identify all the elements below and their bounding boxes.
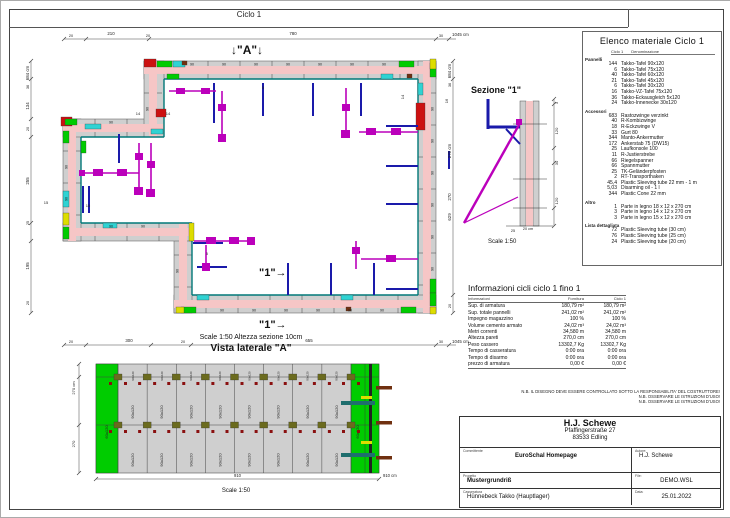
side-cell-label-small: 90x120 bbox=[189, 371, 193, 381]
side-view: 90x12090x12090x12090x12090x12090x12090x1… bbox=[71, 364, 397, 478]
section-prop bbox=[464, 123, 520, 223]
panel-width-label: 90 bbox=[65, 197, 69, 201]
corner-piece bbox=[63, 131, 69, 143]
dim-label-bottom: 30 bbox=[439, 340, 443, 344]
side-cell-label-small: 90x120 bbox=[276, 371, 280, 381]
prop-handle bbox=[202, 263, 210, 271]
side-cell-label: 90x120 bbox=[276, 453, 281, 467]
material-section: Altro1Parte in legno 18 x 12 x 270 cm3Pa… bbox=[583, 200, 721, 222]
panel-width-label: 90 bbox=[316, 309, 320, 313]
wall-concrete bbox=[144, 66, 436, 74]
corner-piece bbox=[81, 141, 86, 153]
corner-piece bbox=[407, 74, 412, 78]
dim-label-top: 210 bbox=[107, 31, 115, 36]
value-casseratura: Hünnebeck Takko (Hauptlager) bbox=[463, 494, 629, 500]
dim-label-right: 20 bbox=[448, 304, 452, 308]
side-cell-label: 90x120 bbox=[130, 453, 135, 467]
plan-inner-label: 15 bbox=[44, 200, 49, 205]
corner-piece bbox=[176, 307, 184, 313]
panel-width-label: 90 bbox=[380, 309, 384, 313]
panel-width-label: 90 bbox=[431, 235, 435, 239]
plan-inner-label: 5 bbox=[262, 86, 264, 90]
side-dim-bottom: 910 bbox=[234, 473, 242, 478]
corner-piece bbox=[189, 223, 194, 241]
cut-marker-1a: "1"→ bbox=[259, 267, 287, 279]
side-cell-label-small: 90x120 bbox=[218, 371, 222, 381]
clamp-dot bbox=[226, 430, 229, 433]
panel-width-label: 90 bbox=[146, 107, 150, 111]
corner-piece bbox=[182, 61, 187, 65]
wall-concrete bbox=[149, 61, 157, 137]
clamp-dot bbox=[299, 430, 302, 433]
clamp-dot bbox=[284, 430, 287, 433]
clamp-dot bbox=[211, 430, 214, 433]
prop-handle bbox=[201, 88, 210, 94]
plan-inner-label: 14 bbox=[136, 111, 141, 116]
cell-casseratura: Casseratura Hünnebeck Takko (Hauptlager) bbox=[460, 489, 632, 505]
section-prop-head bbox=[516, 119, 522, 125]
panel-width-label: 90 bbox=[318, 63, 322, 67]
side-cell-label: 90x120 bbox=[188, 405, 193, 419]
clamp-dot bbox=[153, 430, 156, 433]
prop-handle bbox=[352, 247, 360, 254]
panel-clamp bbox=[114, 422, 122, 428]
side-cell-label: 90x120 bbox=[159, 453, 164, 467]
panel-clamp bbox=[289, 374, 297, 380]
side-cell-label: 90x120 bbox=[217, 453, 222, 467]
dim-label-right: 684 cm bbox=[447, 63, 452, 78]
panel-width-label: 90 bbox=[431, 203, 435, 207]
material-col-qty: Ciclo 1 bbox=[611, 49, 623, 54]
info-col-fornitura: Fornitura bbox=[542, 296, 584, 302]
info-col-label: Informazioni bbox=[468, 296, 542, 302]
wall-concrete bbox=[179, 223, 187, 313]
prop-handle bbox=[206, 237, 216, 244]
prop-handle bbox=[117, 169, 127, 176]
panel-width-label: 90 bbox=[65, 165, 69, 169]
panel-width-label: 90 bbox=[431, 139, 435, 143]
material-name: Parte in legno 15 x 12 x 270 cm bbox=[621, 216, 691, 222]
clamp-dot bbox=[138, 382, 141, 385]
panel-width-label: 90 bbox=[382, 63, 386, 67]
panel-width-label: 90 bbox=[431, 267, 435, 271]
panel-width-label: 90 bbox=[109, 121, 113, 125]
corner-piece bbox=[197, 295, 209, 300]
corner-piece bbox=[144, 59, 156, 67]
prop-handle bbox=[79, 170, 85, 176]
dim-label-top: 1045 cm bbox=[452, 32, 469, 37]
section-view: 3120301202520 cm bbox=[464, 99, 559, 233]
plan-inner-label: 5 bbox=[206, 252, 208, 256]
material-col-name: Denominazione bbox=[631, 49, 659, 54]
plan-inner-label: 15 bbox=[86, 203, 91, 208]
panel-width-label: 90 bbox=[141, 225, 145, 229]
dim-label-left: 684 cm bbox=[25, 65, 30, 80]
panel-clamp bbox=[114, 374, 122, 380]
side-cell-label-small: 90x120 bbox=[247, 371, 251, 381]
end-wedge bbox=[361, 396, 372, 399]
value-committente: EuroSchal Homepage bbox=[463, 453, 629, 459]
prop-handle bbox=[218, 134, 226, 142]
company-name: H.J. Schewe bbox=[460, 417, 720, 428]
panel-clamp bbox=[172, 374, 180, 380]
clamp-dot bbox=[357, 430, 360, 433]
section-scale: Scale 1:50 bbox=[488, 239, 516, 245]
clamp-dot bbox=[124, 382, 127, 385]
cell-autore: Autore: H.J. Schewe bbox=[632, 448, 720, 472]
wall-concrete bbox=[63, 124, 164, 132]
disclaimer-line: N.B. OSSERVARE LE ISTRUZIONI D'USO! bbox=[391, 399, 720, 404]
clamp-dot bbox=[357, 382, 360, 385]
material-section: Pannelli144Takko-Tafel 90x1206Takko-Tafe… bbox=[583, 57, 721, 107]
end-brace bbox=[341, 453, 375, 457]
corner-piece bbox=[399, 61, 414, 67]
clamp-dot bbox=[270, 382, 273, 385]
side-cell-label: 90x120 bbox=[305, 453, 310, 467]
panel-width-label: 90 bbox=[190, 63, 194, 67]
panel-clamp bbox=[231, 374, 239, 380]
panel-width-label: 90 bbox=[350, 63, 354, 67]
panel-width-label: 90 bbox=[222, 63, 226, 67]
panel-clamp bbox=[143, 422, 151, 428]
prop-handle bbox=[386, 255, 396, 262]
panel-clamp bbox=[318, 374, 326, 380]
cycle-info-rows: Sup. di armatura180,79 m²180,79 m²Sup. t… bbox=[468, 303, 626, 367]
plan-inner-label: 14 bbox=[166, 111, 171, 116]
dim-label-left: 195 bbox=[25, 262, 30, 270]
panel-clamp bbox=[260, 422, 268, 428]
dim-label-left: 25 bbox=[26, 221, 30, 225]
wall-concrete bbox=[423, 61, 431, 313]
section-thickness-label: 25 bbox=[511, 229, 515, 233]
corner-piece bbox=[157, 61, 172, 67]
material-section: Accessori683Rastozwinge verzinkt40R-Komb… bbox=[583, 109, 721, 198]
side-cell-label-small: 90x120 bbox=[306, 371, 310, 381]
clamp-dot bbox=[342, 382, 345, 385]
drawing-sheet: Ciclo 1 2021020780301045 cm2030020655301… bbox=[0, 0, 730, 518]
prop-handle bbox=[147, 161, 155, 168]
corner-piece bbox=[63, 227, 69, 239]
clamp-dot bbox=[196, 430, 199, 433]
clamp-dot bbox=[299, 382, 302, 385]
material-row: 344Plastic Cone 22 mm bbox=[583, 192, 721, 198]
cell-file: File: DEMO.WSL bbox=[632, 473, 720, 488]
clamp-dot bbox=[313, 382, 316, 385]
prop-handle bbox=[135, 153, 143, 160]
clamp-dot bbox=[255, 382, 258, 385]
material-name: Takko-Innenecke 30x120 bbox=[621, 101, 677, 107]
clamp-dot bbox=[226, 382, 229, 385]
clamp-dot bbox=[124, 430, 127, 433]
clamp-dot bbox=[211, 382, 214, 385]
wall-concrete bbox=[174, 300, 436, 308]
panel-clamp bbox=[172, 422, 180, 428]
material-qty: 24 bbox=[583, 101, 617, 107]
side-cell-label: 90x120 bbox=[334, 405, 339, 419]
side-cell-label: 90x120 bbox=[130, 405, 135, 419]
panel-width-label: 90 bbox=[109, 225, 113, 229]
material-list-header: Ciclo 1 Denominazione bbox=[611, 49, 715, 55]
panel-clamp bbox=[318, 422, 326, 428]
material-qty: 24 bbox=[583, 240, 617, 246]
material-list-body: Pannelli144Takko-Tafel 90x1206Takko-Tafe… bbox=[583, 57, 721, 245]
side-cell-label: 90x120 bbox=[276, 405, 281, 419]
clamp-dot bbox=[241, 430, 244, 433]
dim-label-left: 36 bbox=[26, 85, 30, 89]
dim-label-right: 270 cm bbox=[447, 143, 452, 158]
end-anchor bbox=[376, 386, 392, 390]
info-col-ciclo: Ciclo 1 bbox=[584, 296, 626, 302]
prop-handle bbox=[341, 130, 350, 138]
corner-piece bbox=[167, 74, 179, 79]
corner-piece bbox=[430, 293, 436, 306]
prop-handle bbox=[93, 169, 103, 176]
clamp-dot bbox=[328, 382, 331, 385]
prop-handle bbox=[146, 189, 155, 197]
clamp-dot bbox=[167, 382, 170, 385]
corner-piece bbox=[65, 119, 77, 125]
panel-clamp bbox=[347, 422, 355, 428]
cycle-info-row: prezzo di armatura0,00 €0,00 € bbox=[468, 361, 626, 367]
clamp-dot bbox=[342, 430, 345, 433]
dim-label-bottom: 20 bbox=[69, 340, 73, 344]
section-dim-label: 120 bbox=[554, 127, 559, 134]
cycle-info-title: Informazioni cicli ciclo 1 fino 1 bbox=[468, 283, 626, 293]
info-row-label: prezzo di armatura bbox=[468, 361, 542, 367]
wall-concrete bbox=[63, 228, 192, 236]
cell-progetto: Progetto Mustergrundriß bbox=[460, 473, 632, 488]
clamp-dot bbox=[313, 430, 316, 433]
end-anchor bbox=[376, 421, 392, 425]
side-view-title: Vista laterale "A" bbox=[101, 343, 401, 354]
section-wall bbox=[526, 101, 533, 226]
material-qty: 344 bbox=[583, 192, 617, 198]
material-row: 3Parte in legno 15 x 12 x 270 cm bbox=[583, 216, 721, 222]
cycle-info-bottom-rule bbox=[468, 368, 626, 369]
prop-handle bbox=[176, 88, 185, 94]
corner-piece bbox=[381, 74, 393, 79]
side-view-scale-note: Scale 1:50 Altezza sezione 10cm bbox=[101, 334, 401, 341]
clamp-dot bbox=[109, 430, 112, 433]
side-cell-label: 90x120 bbox=[159, 405, 164, 419]
panel-width-label: 90 bbox=[431, 171, 435, 175]
panel-width-label: 90 bbox=[431, 107, 435, 111]
panel-width-label: 90 bbox=[220, 309, 224, 313]
end-wedge bbox=[361, 441, 372, 444]
corner-piece bbox=[401, 307, 416, 313]
company-address2: 83533 Edling bbox=[460, 435, 720, 442]
clamp-dot bbox=[328, 430, 331, 433]
dim-label-top: 780 bbox=[289, 31, 297, 36]
side-cell-label: 90x120 bbox=[247, 453, 252, 467]
panel-clamp bbox=[143, 374, 151, 380]
section-panel bbox=[533, 101, 539, 226]
dim-label-top: 30 bbox=[439, 34, 443, 38]
cell-data: Data: 25.01.2022 bbox=[632, 489, 720, 505]
dim-label-right: 36 bbox=[448, 83, 452, 87]
prop-handle bbox=[229, 237, 239, 244]
end-brace bbox=[341, 401, 375, 405]
material-row: 24Takko-Innenecke 30x120 bbox=[583, 101, 721, 107]
value-progetto: Mustergrundriß bbox=[463, 478, 629, 484]
material-name: Plastic Sleeving tube (20 cm) bbox=[621, 240, 686, 246]
section-dim-label: 120 bbox=[554, 197, 559, 204]
info-row-ciclo: 0,00 € bbox=[584, 361, 626, 367]
panel-clamp bbox=[201, 422, 209, 428]
side-cell-label: 90x120 bbox=[305, 405, 310, 419]
cut-marker-1b: "1"→ bbox=[259, 319, 287, 331]
plan-inner-label: 14 bbox=[400, 94, 405, 99]
panel-width-label: 90 bbox=[284, 309, 288, 313]
clamp-dot bbox=[109, 382, 112, 385]
value-autore: H.J. Schewe bbox=[635, 453, 718, 459]
dim-label-left: 20 bbox=[26, 127, 30, 131]
section-dim-label: 30 bbox=[554, 160, 559, 165]
dim-label-top: 20 bbox=[146, 34, 150, 38]
side-cell-label-small: 90x120 bbox=[131, 371, 135, 381]
dim-label-right: 270 bbox=[447, 193, 452, 201]
side-view-scale: Scale 1:50 bbox=[101, 488, 371, 494]
side-cell-label: 90x120 bbox=[247, 405, 252, 419]
dim-label-bottom: 1045 cm bbox=[452, 339, 469, 344]
material-list-panel: Elenco materiale Ciclo 1 Ciclo 1 Denomin… bbox=[582, 31, 722, 266]
value-data: 25.01.2022 bbox=[635, 494, 718, 500]
material-qty: 3 bbox=[583, 216, 617, 222]
clamp-dot bbox=[196, 382, 199, 385]
side-end-panel bbox=[96, 364, 118, 473]
prop-handle bbox=[247, 237, 255, 245]
side-dim-left-total: 270 cm bbox=[71, 381, 76, 395]
side-dim-left: 270 bbox=[71, 440, 76, 447]
section-thickness-label: 20 cm bbox=[523, 227, 533, 231]
clamp-dot bbox=[255, 430, 258, 433]
panel-width-label: 90 bbox=[286, 63, 290, 67]
title-block: H.J. Schewe Pfaffingerstraße 27 83533 Ed… bbox=[459, 416, 721, 508]
corner-piece bbox=[63, 213, 69, 225]
dim-label-right: 629 bbox=[447, 213, 452, 221]
prop-handle bbox=[342, 104, 350, 111]
panel-width-label: 90 bbox=[348, 309, 352, 313]
panel-clamp bbox=[260, 374, 268, 380]
cell-committente: Committente EuroSchal Homepage bbox=[460, 448, 632, 472]
section-title: Sezione "1" bbox=[471, 85, 521, 95]
clamp-dot bbox=[284, 382, 287, 385]
corner-piece bbox=[85, 124, 101, 129]
panel-width-label: 90 bbox=[252, 309, 256, 313]
cycle-info-panel: Informazioni cicli ciclo 1 fino 1 Inform… bbox=[468, 283, 626, 369]
material-row: 24Plastic Sleeving tube (20 cm) bbox=[583, 240, 721, 246]
prop-handle bbox=[218, 104, 226, 111]
clamp-dot bbox=[182, 430, 185, 433]
disclaimer-notes: N.B. IL DISEGNO DEVE ESSERE CONTROLLATO … bbox=[391, 389, 720, 404]
plan-walls bbox=[61, 59, 449, 314]
dim-label-left: 134 bbox=[25, 102, 30, 110]
cycle-info-header: Informazioni Fornitura Ciclo 1 bbox=[468, 295, 626, 303]
dim-label-left: 255 bbox=[25, 177, 30, 185]
clamp-dot bbox=[241, 382, 244, 385]
corner-piece bbox=[151, 129, 163, 134]
material-name: Plastic Cone 22 mm bbox=[621, 192, 666, 198]
corner-piece bbox=[430, 307, 436, 314]
panel-width-label: 90 bbox=[254, 63, 258, 67]
panel-clamp bbox=[289, 422, 297, 428]
side-green-label: 60x120 bbox=[104, 425, 109, 439]
panel-width-label: 90 bbox=[176, 269, 180, 273]
prop-handle bbox=[366, 128, 376, 135]
corner-piece bbox=[341, 295, 353, 300]
side-dim-bottom-total: 910 cm bbox=[383, 473, 397, 478]
corner-piece bbox=[156, 109, 166, 117]
side-cell-label-small: 90x120 bbox=[160, 371, 164, 381]
prop-handle bbox=[391, 128, 401, 135]
corner-piece bbox=[430, 59, 436, 69]
side-cell-label: 90x120 bbox=[334, 453, 339, 467]
title-block-company: H.J. Schewe Pfaffingerstraße 27 83533 Ed… bbox=[460, 417, 720, 448]
corner-piece bbox=[418, 83, 423, 95]
corner-piece bbox=[430, 279, 436, 293]
panel-clamp bbox=[201, 374, 209, 380]
side-cell-label: 90x120 bbox=[188, 453, 193, 467]
wall-concrete bbox=[68, 119, 76, 241]
section-marker-a: ↓"A"↓ bbox=[231, 43, 263, 57]
plan-inner-label: 16 bbox=[444, 98, 449, 103]
prop-handle bbox=[134, 187, 143, 195]
panel-clamp bbox=[231, 422, 239, 428]
panel-clamp bbox=[347, 374, 355, 380]
section-dim-label: 3 bbox=[554, 101, 559, 104]
clamp-dot bbox=[182, 382, 185, 385]
value-file: DEMO.WSL bbox=[635, 478, 718, 484]
material-section: Lista dettagliata72Plastic Sleeving tube… bbox=[583, 223, 721, 245]
dim-label-left: 20 bbox=[26, 301, 30, 305]
clamp-dot bbox=[138, 430, 141, 433]
side-cell-label: 90x120 bbox=[217, 405, 222, 419]
material-list-title: Elenco materiale Ciclo 1 bbox=[583, 36, 721, 46]
clamp-dot bbox=[153, 382, 156, 385]
info-row-fornitura: 0,00 € bbox=[542, 361, 584, 367]
clamp-dot bbox=[167, 430, 170, 433]
dim-label-top: 20 bbox=[69, 34, 73, 38]
side-cell-label-small: 90x120 bbox=[335, 371, 339, 381]
end-anchor bbox=[376, 456, 392, 460]
clamp-dot bbox=[270, 430, 273, 433]
